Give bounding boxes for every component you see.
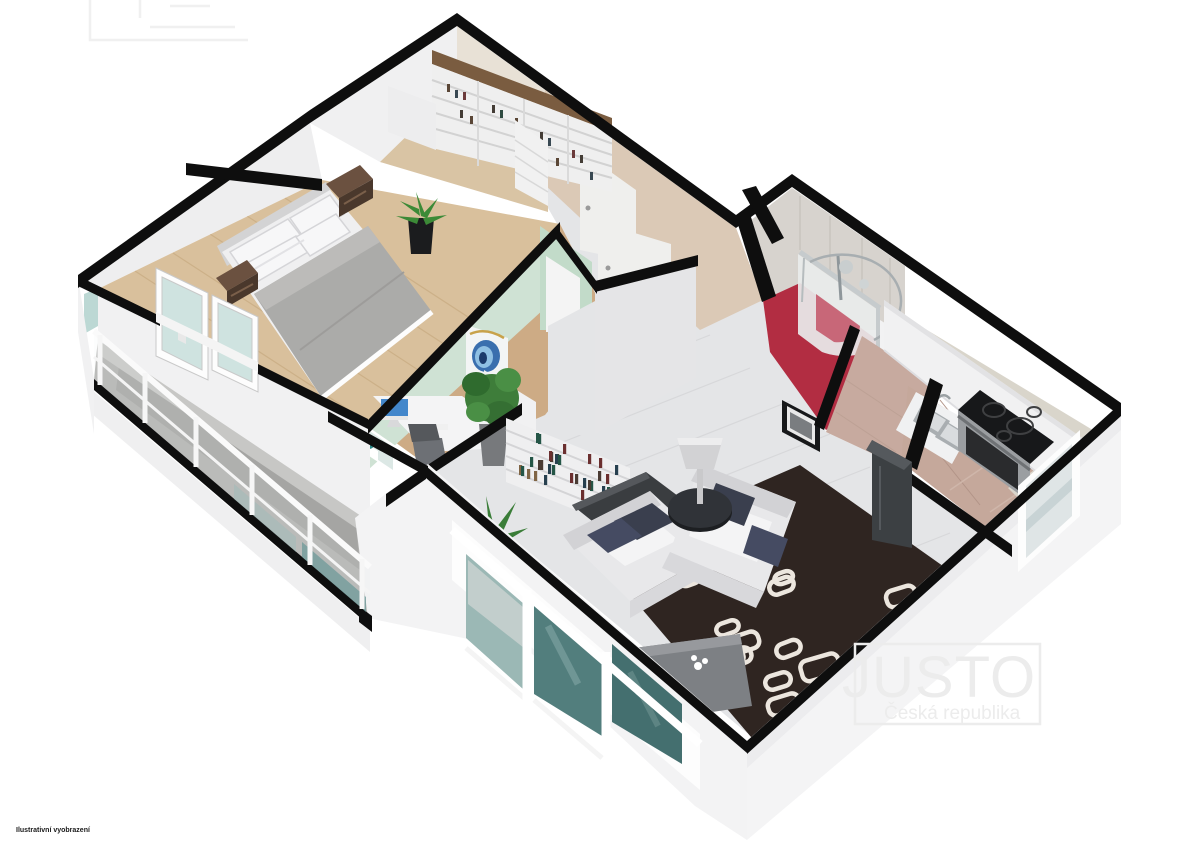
svg-text:Česká republika: Česká republika	[884, 702, 1021, 724]
svg-text:JUSTO: JUSTO	[842, 645, 1036, 710]
svg-text:Ilustrativní vyobrazení: Ilustrativní vyobrazení	[16, 827, 91, 834]
